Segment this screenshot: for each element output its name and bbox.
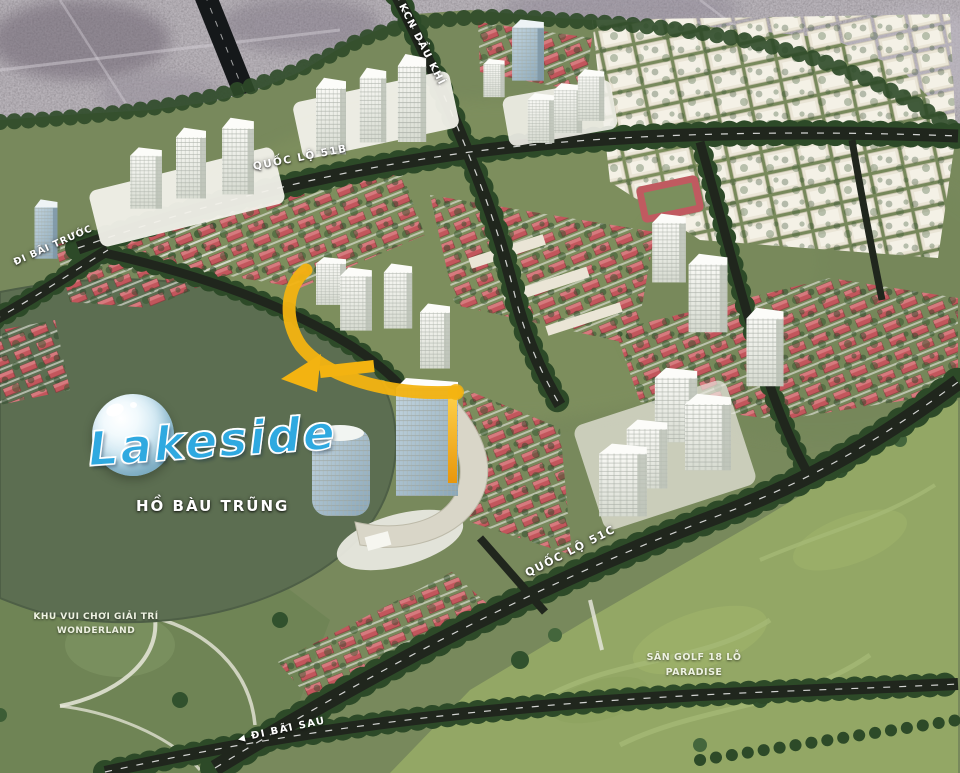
- masterplan-map: QUỐC LỘ 51B KCN DẦU KHÍ QUỐC LỘ 51C ĐI B…: [0, 0, 960, 773]
- wonderland-label-line2: WONDERLAND: [26, 624, 166, 638]
- wonderland-label-line1: KHU VUI CHƠI GIẢI TRÍ: [26, 610, 166, 624]
- courtyard-building: [639, 179, 700, 220]
- lake-name-label: HỒ BÀU TRŨNG: [136, 497, 289, 515]
- left-arrow-glyph: ◀: [237, 733, 247, 745]
- map-render: [0, 0, 960, 773]
- wonderland-area-label: KHU VUI CHƠI GIẢI TRÍ WONDERLAND: [26, 610, 166, 639]
- golf-label-line2: PARADISE: [634, 665, 754, 680]
- golf-label-line1: SÂN GOLF 18 LỖ: [634, 650, 754, 665]
- bubble-highlight: [130, 402, 137, 408]
- golf-area-label: SÂN GOLF 18 LỖ PARADISE: [634, 650, 754, 680]
- lakeside-logo: Lakeside: [86, 388, 316, 498]
- gold-facade-stripe: [448, 388, 457, 483]
- blue-glass-tower: [512, 19, 544, 80]
